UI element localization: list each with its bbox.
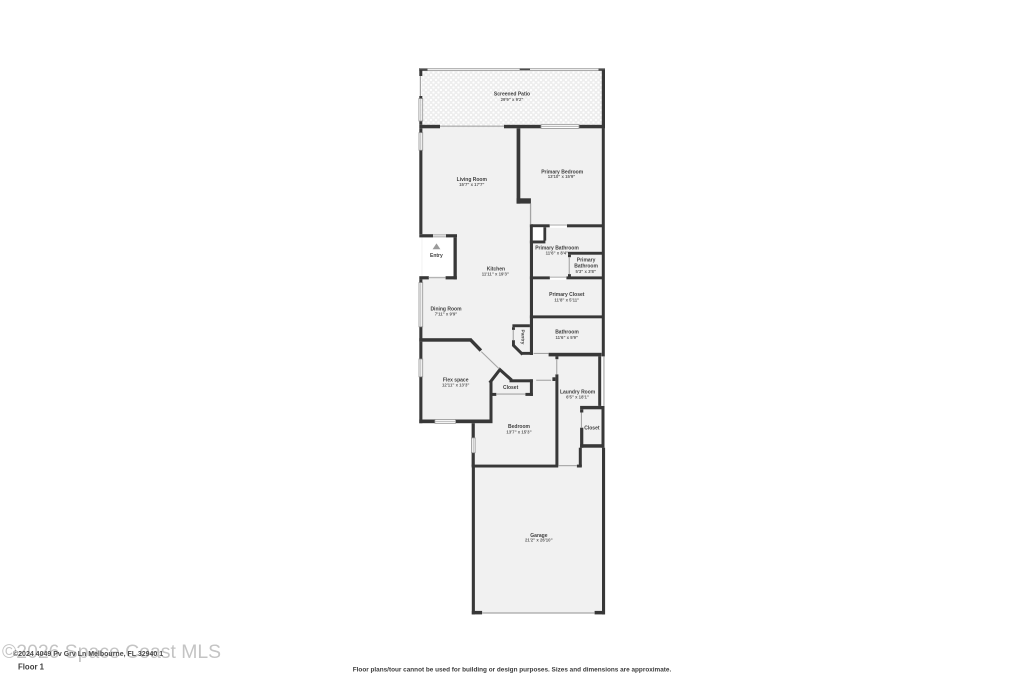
svg-text:6'5" x 18'1": 6'5" x 18'1" bbox=[566, 395, 589, 400]
svg-text:11'11" x 19'3": 11'11" x 19'3" bbox=[482, 272, 509, 277]
svg-text:Pantry: Pantry bbox=[519, 330, 525, 345]
svg-text:15'7" x 17'7": 15'7" x 17'7" bbox=[459, 182, 484, 187]
svg-text:Closet: Closet bbox=[503, 385, 519, 391]
svg-text:12'11" x 13'3": 12'11" x 13'3" bbox=[442, 383, 469, 388]
svg-text:29'9" x 9'2": 29'9" x 9'2" bbox=[501, 97, 524, 102]
svg-text:11'6" x 8'4": 11'6" x 8'4" bbox=[546, 251, 569, 256]
svg-text:21'2" x 26'10": 21'2" x 26'10" bbox=[525, 537, 553, 542]
svg-text:Entry: Entry bbox=[430, 253, 443, 259]
svg-text:Floor plans/tour cannot be use: Floor plans/tour cannot be used for buil… bbox=[353, 667, 672, 674]
svg-text:13'7" x 15'3": 13'7" x 15'3" bbox=[506, 430, 531, 435]
svg-text:11'8" x 5'11": 11'8" x 5'11" bbox=[554, 297, 579, 302]
svg-text:7'11" x 9'9": 7'11" x 9'9" bbox=[435, 312, 458, 317]
svg-text:5'3" x 3'8": 5'3" x 3'8" bbox=[575, 269, 595, 274]
svg-text:©2024 4049 Pv Grv Ln Melbourne: ©2024 4049 Pv Grv Ln Melbourne, FL 32940… bbox=[13, 650, 163, 658]
svg-text:11'6" x 5'9": 11'6" x 5'9" bbox=[555, 335, 578, 340]
svg-text:13'10" x 15'9": 13'10" x 15'9" bbox=[548, 174, 576, 179]
svg-text:Closet: Closet bbox=[584, 426, 600, 432]
svg-text:Floor 1: Floor 1 bbox=[18, 662, 45, 671]
